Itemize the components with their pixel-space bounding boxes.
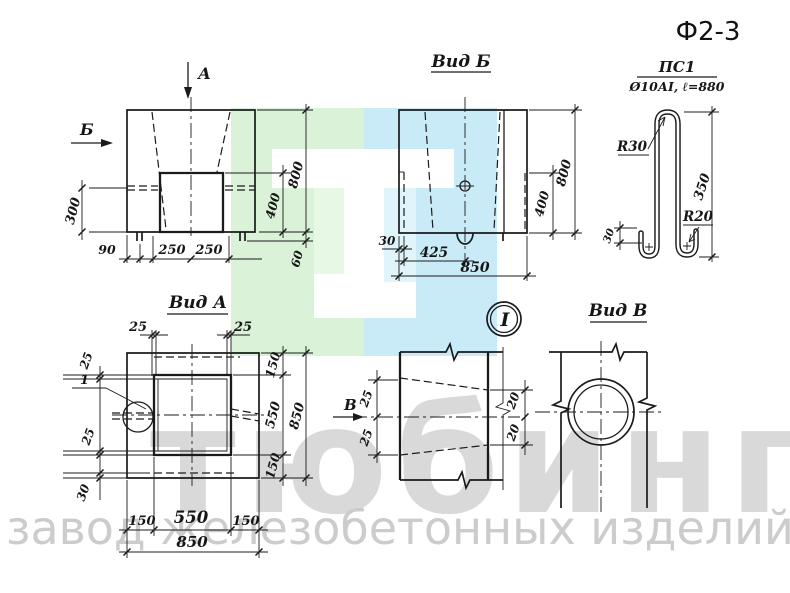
rebar-mark: ПС1 [658,58,696,76]
dim-250-right: 250 [194,243,222,258]
view-v-right-break [639,352,655,508]
front-dim-ticks [79,107,310,263]
view-v-label: Вид В [588,301,648,321]
view-v-top-break [549,344,647,360]
dim-400: 400 [531,189,552,218]
dim-25-lower: 25 [356,427,375,448]
dim-25-top-right: 25 [233,320,252,335]
front-slot-outline [160,173,223,232]
rebar-detail: ПС1 Ø10АI, ℓ=880 R30 R20 350 30 [601,58,725,262]
view-b-label: Вид Б [431,52,491,72]
technical-drawing: Ф2-3 А Б 300 90 250 250 400 800 60 [0,0,790,593]
view-a-label: Вид А [168,293,227,313]
view-marker-v: В [343,396,357,414]
view-marker-b: Б [79,120,94,139]
dim-800: 800 [554,158,576,188]
view-v-centerlines [535,341,665,513]
dim-800: 800 [286,160,308,190]
dim-850-bottom: 850 [176,533,208,551]
dim-150-bottom-right: 150 [232,514,259,529]
detail-ref-1: 1 [80,373,89,388]
view-v-left-break [553,352,569,508]
view-a-centerlines [112,344,270,486]
sheet-title: Ф2-3 [676,17,741,47]
rebar-dim-30: 30 [601,226,618,244]
rebar-dim-350: 350 [691,172,714,202]
detail-i-dim-ticks [374,377,529,459]
rebar-radius-bottom: R20 [682,209,714,225]
detail-leader [72,388,146,409]
detail-i-balloon-label: I [500,309,511,331]
rebar-spec: Ø10АI, ℓ=880 [629,79,725,94]
drawing-sheet: тюбинг завод железобетонных изделий Ф2-3… [0,0,790,593]
view-b-outline [399,110,527,233]
view-marker-v-head [353,413,364,421]
detail-i-view: I В 25 25 20 20 [333,302,533,490]
detail-i-walls [400,352,488,480]
dim-550-right: 550 [263,400,285,430]
dim-25-upper: 25 [356,388,375,409]
dim-25-left-lower: 25 [78,426,97,447]
detail-i-hidden-tapers [400,378,488,455]
dim-550-bottom: 550 [174,508,209,527]
dim-850-right: 850 [287,401,309,431]
dim-60: 60 [288,248,306,268]
dim-425: 425 [420,245,448,261]
dim-400: 400 [262,191,283,220]
dim-30-left: 30 [74,482,93,503]
detail-i-break-line [496,347,510,490]
view-marker-a: А [197,64,211,83]
rebar-hook-center-marks [645,242,691,251]
dim-25-left-upper: 25 [76,350,95,371]
rebar-bar-inner [641,112,696,256]
dim-250-left: 250 [157,243,185,258]
front-dimension-lines [82,104,306,259]
dim-30: 30 [379,234,396,248]
dim-150-bottom-left: 150 [128,514,155,529]
front-extension-lines [89,110,313,263]
dim-20-upper: 20 [503,390,522,412]
view-a-outline [127,353,259,478]
view-b-dimension-lines [382,104,575,276]
front-view: А Б 300 90 250 250 400 800 60 [63,62,313,269]
view-b: Вид Б 30 425 850 400 800 [379,52,582,281]
dim-300: 300 [63,196,85,226]
dim-25-top-left: 25 [128,320,147,335]
rebar-radius-top: R30 [616,139,648,155]
dim-90: 90 [98,242,116,257]
section-arrow-b-head [101,139,113,147]
view-b-hidden-lines [404,112,525,232]
view-a: Вид А 1 25 25 25 25 30 150 550 150 850 1… [63,293,313,558]
dim-850: 850 [460,260,489,276]
view-v: Вид В [535,301,665,513]
dim-20-lower: 20 [503,422,522,444]
rebar-bar-outer [641,112,696,256]
